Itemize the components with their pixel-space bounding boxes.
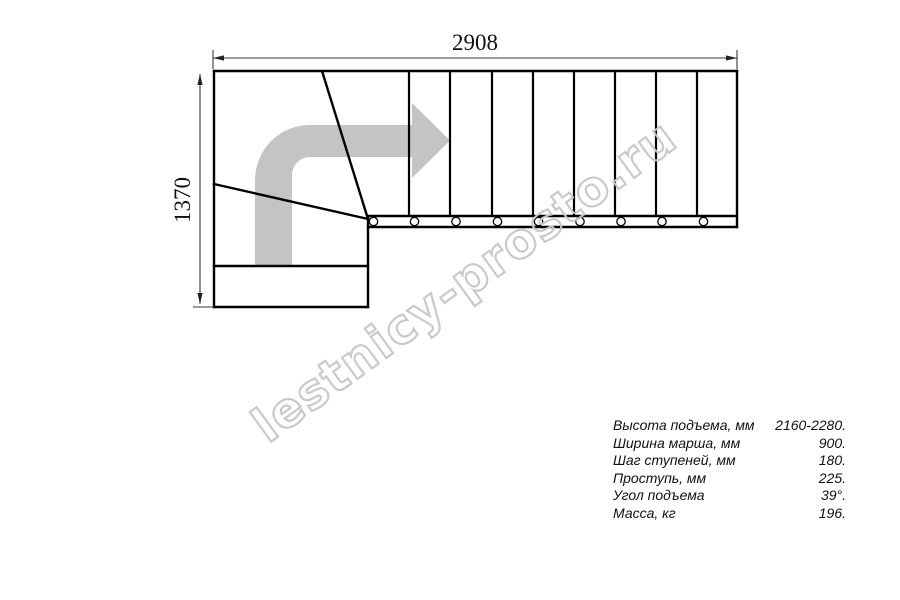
spec-row: Ширина марша, мм 900. [613,435,846,453]
spec-value: 196. [819,505,846,523]
spec-value: 2160-2280. [775,417,846,435]
spec-label: Ширина марша, мм [613,435,740,453]
spec-label: Шаг ступеней, мм [613,452,736,470]
watermark-text: lestnicy-prosto.ru [242,109,687,454]
spec-label: Угол подъема [613,487,705,505]
spec-label: Проступь, мм [613,470,706,488]
spec-value: 180. [819,452,846,470]
left-dimension [193,74,214,307]
spec-label: Масса, кг [613,505,676,523]
spec-value: 900. [819,435,846,453]
spec-row: Масса, кг 196. [613,505,846,523]
staircase-drawing-page: { "drawing": { "top_dimension_label": "2… [0,0,900,600]
spec-row: Проступь, мм 225. [613,470,846,488]
spec-row: Высота подъема, мм 2160-2280. [613,417,846,435]
spec-value: 39°. [821,487,846,505]
left-dimension-label: 1370 [170,177,195,223]
top-dimension-label: 2908 [452,30,498,55]
direction-arrow [255,103,450,266]
spec-label: Высота подъема, мм [613,417,755,435]
spec-value: 225. [819,470,846,488]
spec-row: Шаг ступеней, мм 180. [613,452,846,470]
spec-row: Угол подъема 39°. [613,487,846,505]
spec-table: Высота подъема, мм 2160-2280. Ширина мар… [613,417,846,523]
